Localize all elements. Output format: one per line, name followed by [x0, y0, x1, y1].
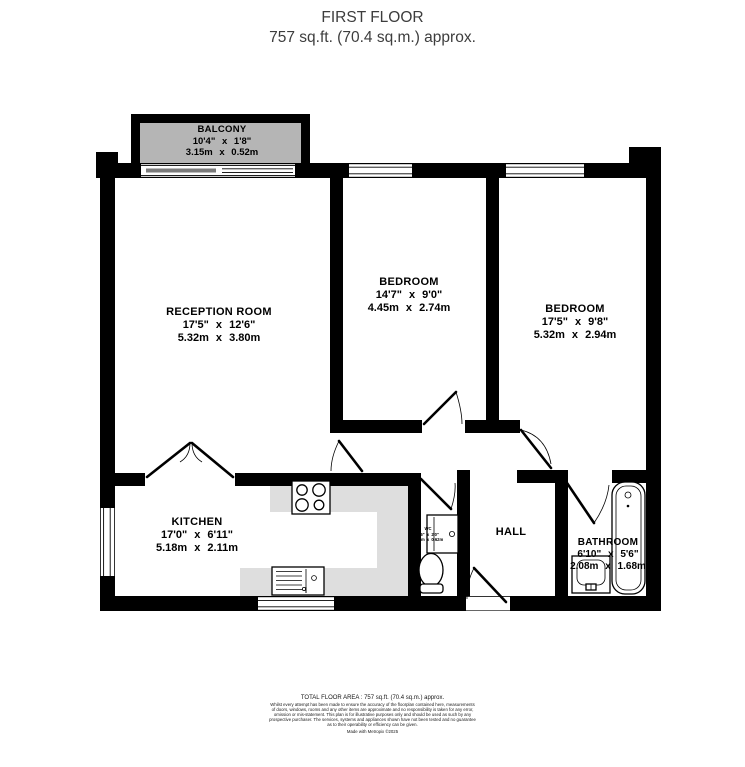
room-name: KITCHEN [156, 516, 238, 529]
room-dims-imperial: 17'5" x 9'8" [534, 316, 617, 329]
wall-hall-bathroom-divider [555, 470, 568, 596]
room-name: HALL [496, 526, 527, 539]
reception-room-label: RECEPTION ROOM 17'5" x 12'6" 5.32m x 3.8… [166, 306, 272, 345]
wall-reception-bedroom1 [330, 163, 343, 420]
wall-wc-right [457, 470, 470, 596]
bedroom2-label: BEDROOM 17'5" x 9'8" 5.32m x 2.94m [534, 303, 617, 342]
wall-bedroom1-bottom-left [330, 420, 422, 433]
room-dims-imperial: 10'4" x 1'8" [186, 136, 258, 148]
footer: TOTAL FLOOR AREA : 757 sq.ft. (70.4 sq.m… [0, 694, 745, 735]
bathroom-door [567, 483, 609, 523]
floorplan-drawing [0, 0, 745, 767]
wall-notch-topright [629, 147, 661, 178]
bedroom1-label: BEDROOM 14'7" x 9'0" 4.45m x 2.74m [368, 276, 451, 315]
room-name: BEDROOM [368, 276, 451, 289]
bedroom1-door [424, 392, 462, 424]
room-name: BEDROOM [534, 303, 617, 316]
window-kitchen [258, 597, 334, 610]
room-dims-imperial: 17'0" x 6'11" [156, 529, 238, 542]
floorplan-page: FIRST FLOOR 757 sq.ft. (70.4 sq.m.) appr… [0, 0, 745, 767]
kitchen-label: KITCHEN 17'0" x 6'11" 5.18m x 2.11m [156, 516, 238, 555]
room-name: BATHROOM [570, 537, 646, 549]
metropix-credit: Made with Metropix ©2025 [0, 728, 745, 735]
wall-bathroom-top-right [612, 470, 661, 483]
room-dims-imperial: 14'7" x 9'0" [368, 289, 451, 302]
room-dims-imperial: 17'5" x 12'6" [166, 319, 272, 332]
room-name: RECEPTION ROOM [166, 306, 272, 319]
reception-hall-door [331, 441, 362, 471]
wall-kitchen-top-left [115, 473, 145, 486]
balcony-door-window [141, 164, 295, 177]
room-dims-metric: 1.68m x 0.62m [413, 537, 443, 543]
room-dims-metric: 5.18m x 2.11m [156, 542, 238, 555]
room-dims-metric: 4.45m x 2.74m [368, 302, 451, 315]
room-dims-imperial: 6'10" x 5'6" [570, 549, 646, 561]
wall-outer-bottom [100, 596, 661, 611]
window-left-wall [101, 508, 114, 576]
bathroom-label: BATHROOM 6'10" x 5'6" 2.08m x 1.68m [570, 537, 646, 573]
wc-door [421, 479, 455, 509]
wall-hall-bathroom-top [517, 470, 555, 483]
room-name: BALCONY [186, 124, 258, 136]
toilet-icon [419, 554, 443, 594]
wall-outer-right [646, 163, 661, 611]
room-dims-metric: 5.32m x 3.80m [166, 332, 272, 345]
room-dims-metric: 5.32m x 2.94m [534, 329, 617, 342]
room-dims-metric: 2.08m x 1.68m [570, 561, 646, 573]
kitchen-sink-icon [272, 567, 324, 595]
kitchen-double-door [147, 443, 233, 477]
wall-bedroom1-bedroom2 [486, 163, 499, 433]
wc-label: WC 5'6" x 2'0" 1.68m x 0.62m [413, 526, 443, 543]
window-bedroom1 [349, 164, 412, 177]
bedroom2-door [521, 430, 551, 468]
stove-icon [292, 481, 330, 514]
hall-label: HALL [496, 526, 527, 539]
balcony-sliding-door [146, 169, 216, 173]
window-bedroom2 [506, 164, 584, 177]
balcony-label: BALCONY 10'4" x 1'8" 3.15m x 0.52m [186, 124, 258, 159]
room-dims-metric: 3.15m x 0.52m [186, 147, 258, 159]
wall-notch-topleft [96, 152, 118, 178]
